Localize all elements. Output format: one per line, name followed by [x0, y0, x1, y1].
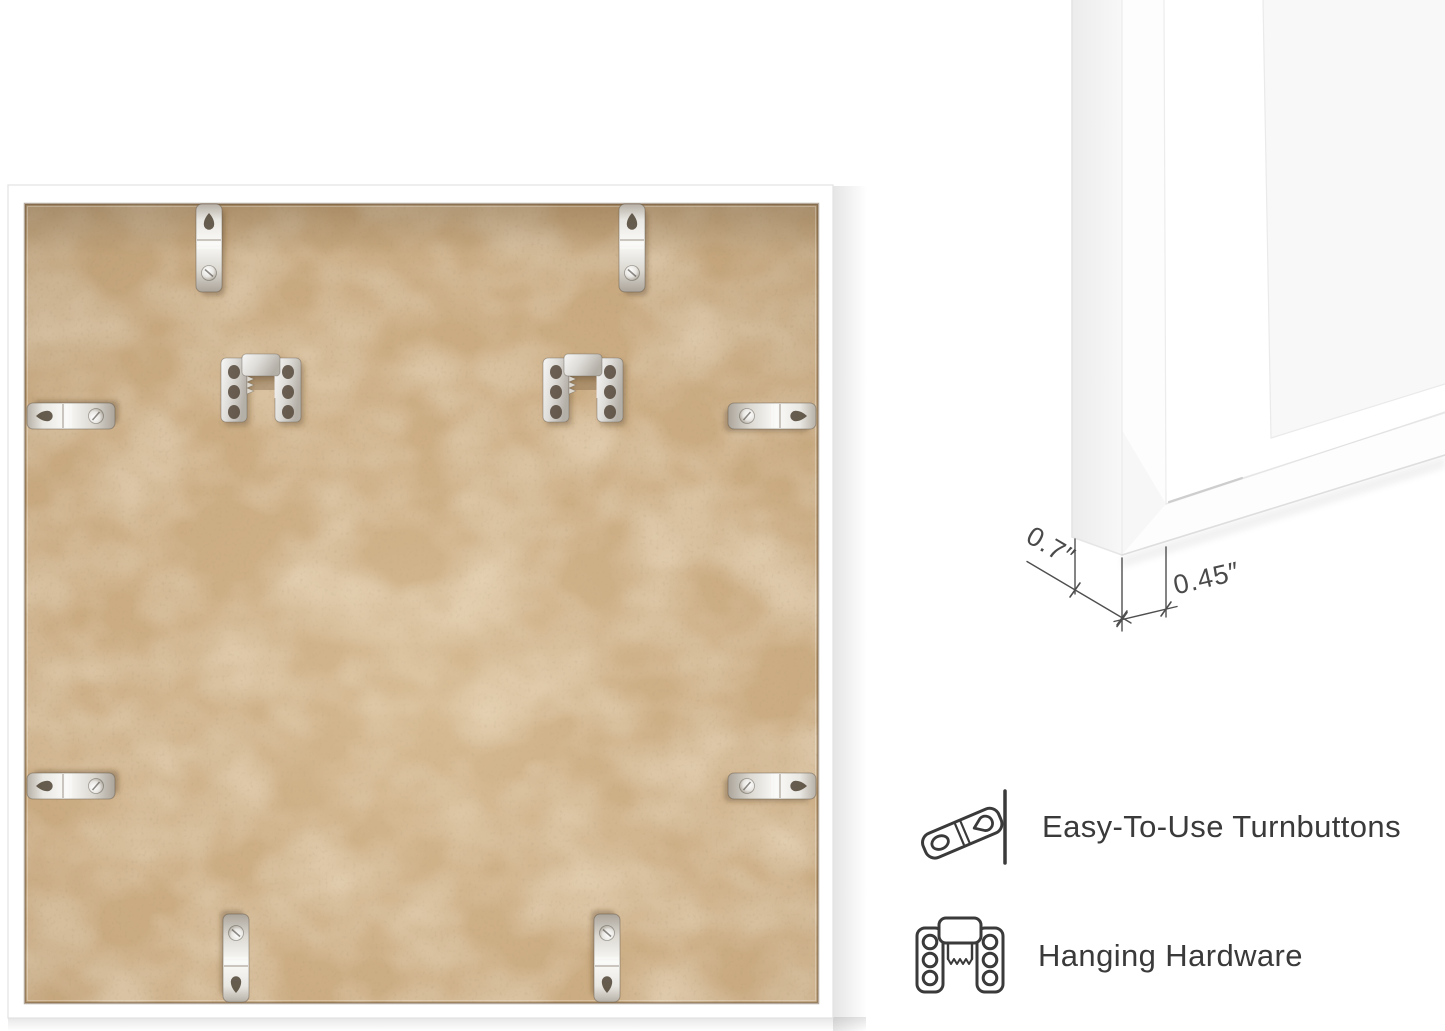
- frame-side-face: [1072, 0, 1122, 555]
- frame-back-bottom-shadow: [8, 1017, 866, 1031]
- face-width-dimension-label: 0.45″: [1171, 556, 1243, 600]
- feature-turnbuttons: Easy-To-Use Turnbuttons: [914, 785, 1401, 869]
- dimension-ticks: [1070, 583, 1171, 627]
- hanging-hardware-icon: [914, 915, 1006, 997]
- feature-hanging-hardware-label: Hanging Hardware: [1038, 938, 1303, 974]
- frame-back-photo: [8, 185, 867, 1031]
- frame-back-right-shadow: [833, 186, 867, 1031]
- feature-hanging-hardware: Hanging Hardware: [914, 914, 1303, 998]
- depth-dimension-line: [1027, 562, 1131, 624]
- mdf-top-shadow: [25, 204, 818, 256]
- mdf-lighting-overlay: [25, 204, 818, 1003]
- face-width-dimension-line: [1114, 607, 1177, 622]
- product-infographic: 0.7″ 0.45″ Easy-To-Use Turnbuttons: [0, 0, 1445, 1031]
- artwork-area: [1263, 0, 1445, 438]
- feature-turnbuttons-label: Easy-To-Use Turnbuttons: [1042, 809, 1401, 845]
- scene-graphic: 0.7″ 0.45″: [0, 0, 1445, 1031]
- turnbutton-icon: [914, 785, 1010, 869]
- frame-corner-photo: [1072, 0, 1445, 568]
